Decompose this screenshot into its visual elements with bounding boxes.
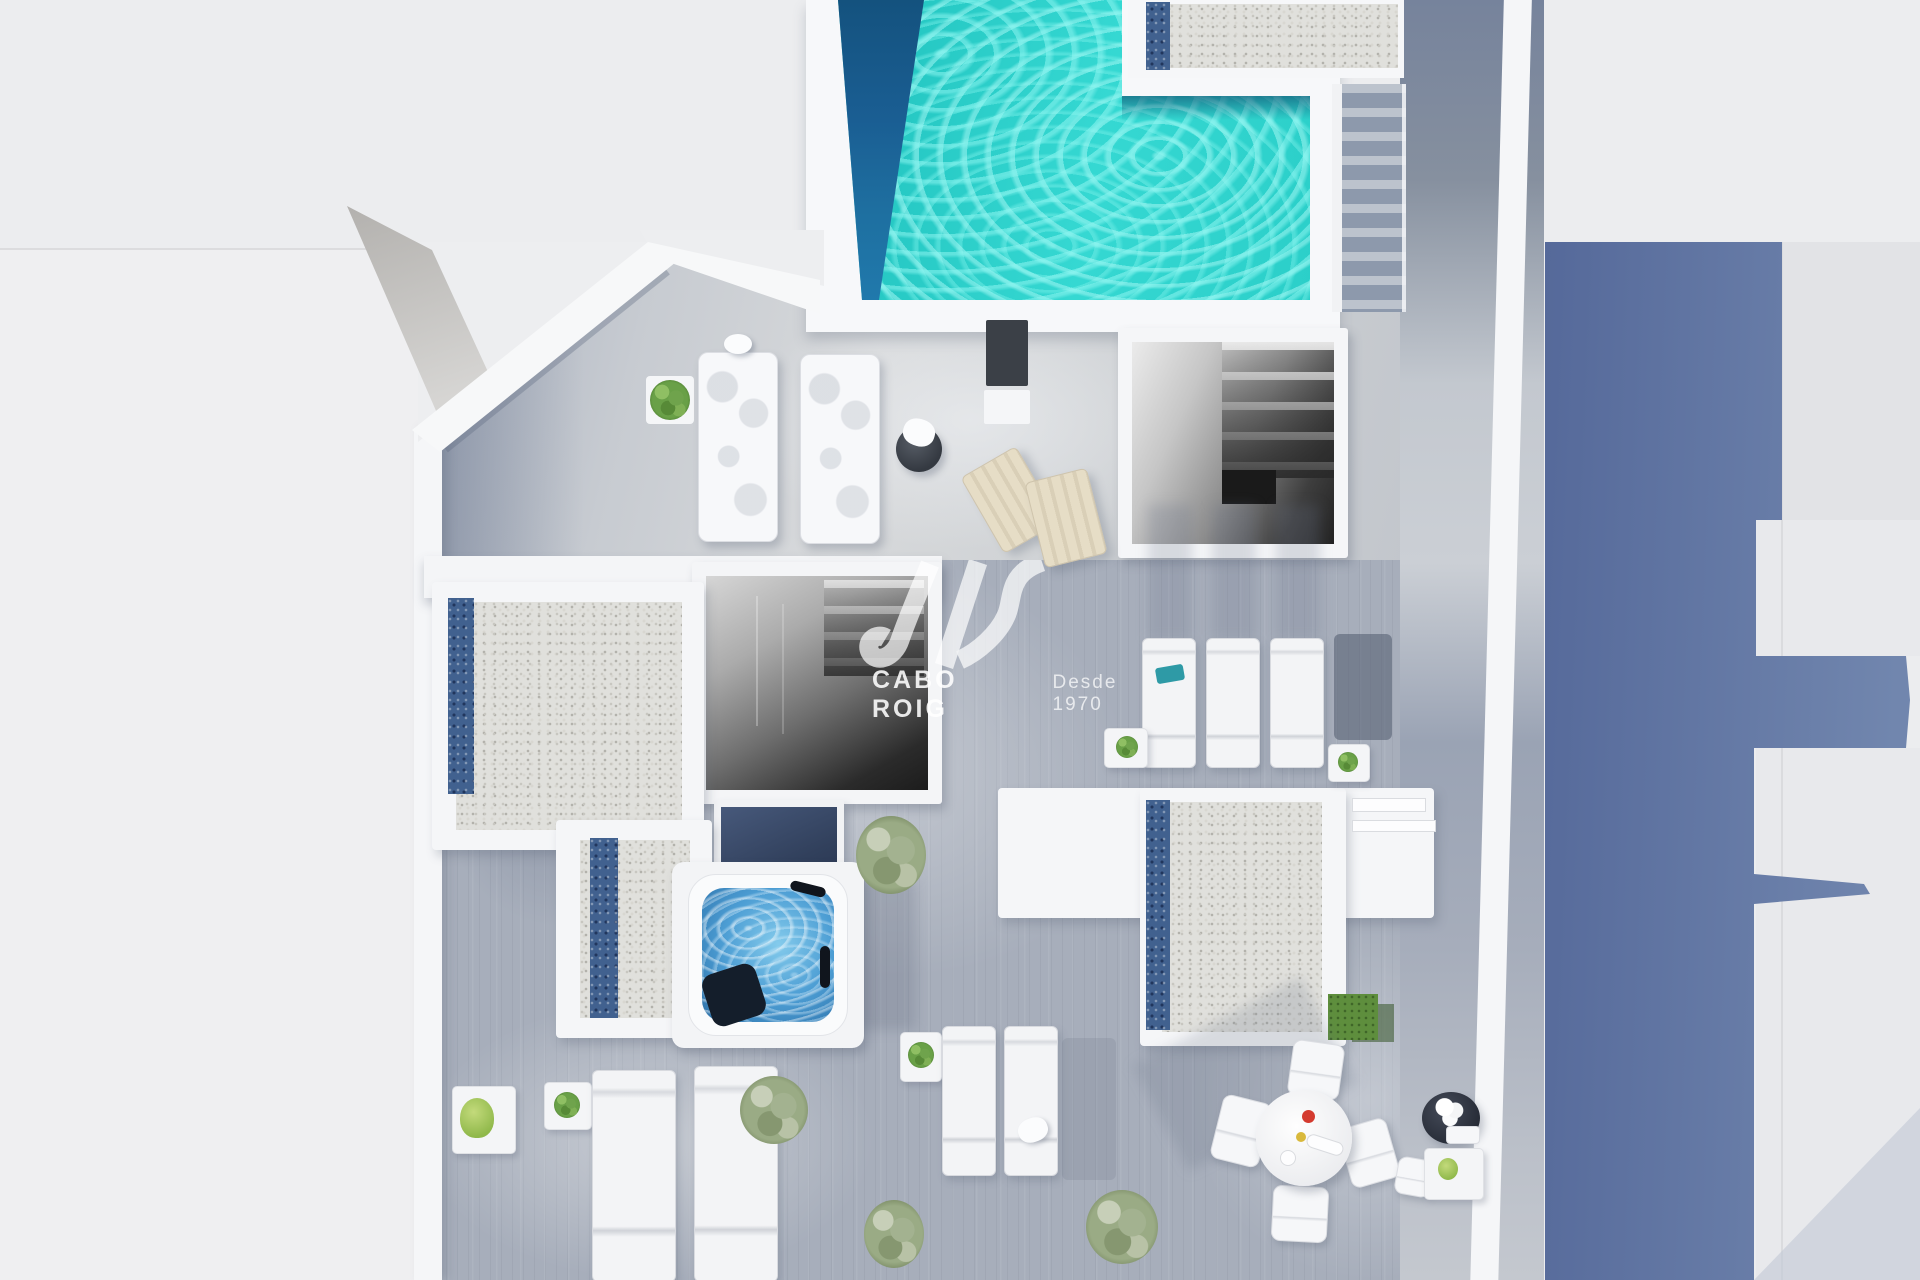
bottom-right-corner-shadow	[1754, 1108, 1920, 1280]
lounger-shadow	[1212, 505, 1256, 640]
pool-gravel-fill	[1152, 4, 1398, 68]
gravel-planter-upper-fill	[456, 602, 682, 830]
right-bg-column-c	[1756, 748, 1920, 1280]
stairwell-upper-landing	[1222, 470, 1276, 504]
pool-arm-wall-shadow	[1122, 96, 1310, 120]
stairwell-upper-treads	[1222, 342, 1334, 478]
pebble-strip-lower	[590, 838, 618, 1018]
potted-plant	[1116, 736, 1138, 758]
pear-plant	[1438, 1158, 1458, 1180]
potted-plant	[554, 1092, 580, 1118]
gravel-T-pebble-strip	[1146, 800, 1170, 1030]
sun-lounger	[592, 1070, 676, 1280]
bench-slat	[1352, 798, 1426, 812]
artificial-grass-patch	[1328, 994, 1378, 1040]
leafy-plant	[1086, 1190, 1158, 1264]
corner-chair-back	[1446, 1126, 1480, 1144]
white-flowers	[1432, 1096, 1468, 1128]
pebble-strip-upper	[448, 598, 474, 794]
watermark-brand: CABO ROIG	[872, 666, 1037, 724]
table-item-cup	[1280, 1150, 1296, 1166]
watermark: CABO ROIG Desde 1970	[850, 560, 1170, 710]
watermark-text: CABO ROIG Desde 1970	[872, 666, 1170, 724]
table-item-red	[1302, 1110, 1315, 1123]
white-shell-ornament	[724, 334, 752, 354]
watermark-tagline: Desde 1970	[1053, 672, 1171, 716]
pool-stairs	[1332, 84, 1406, 312]
sun-lounger	[1206, 638, 1260, 768]
leafy-plant	[864, 1200, 924, 1268]
leafy-plant	[740, 1076, 808, 1144]
roof-terrace-render: CABO ROIG Desde 1970	[0, 0, 1920, 1280]
right-bg-column-a	[1782, 242, 1920, 520]
padded-sun-lounger	[698, 352, 778, 542]
boxwood-plant	[650, 380, 690, 420]
potted-plant	[1338, 752, 1358, 772]
leafy-plant	[856, 816, 926, 894]
left-neighbour-roof	[0, 248, 424, 1280]
lounger-in-shadow	[1334, 634, 1392, 740]
sun-lounger	[1270, 638, 1324, 768]
jacuzzi-shadow	[856, 880, 916, 1030]
siv-logo	[856, 560, 1056, 670]
blue-shadow-wall	[1545, 242, 1910, 1280]
dining-chair	[1271, 1185, 1330, 1244]
stairwell-center-door-line2	[782, 604, 784, 734]
right-bg-column-b	[1756, 520, 1920, 656]
potted-plant	[908, 1042, 934, 1068]
lounger-cast-shadow	[1062, 1038, 1116, 1180]
sun-lounger	[1004, 1026, 1058, 1176]
sun-lounger	[942, 1026, 996, 1176]
hot-tub-handle-right	[820, 946, 830, 988]
pear-plant	[460, 1098, 494, 1138]
table-item-yellow	[1296, 1132, 1306, 1142]
upper-deck-left-shade	[424, 248, 584, 596]
pool-mat-dark	[986, 320, 1028, 386]
bench-slat	[1352, 820, 1436, 832]
pool-pebble-strip	[1146, 2, 1170, 70]
pool-step-pad	[984, 390, 1030, 424]
stairwell-center-door-line	[756, 596, 758, 726]
lounger-shadow	[1276, 505, 1320, 640]
padded-sun-lounger	[800, 354, 880, 544]
